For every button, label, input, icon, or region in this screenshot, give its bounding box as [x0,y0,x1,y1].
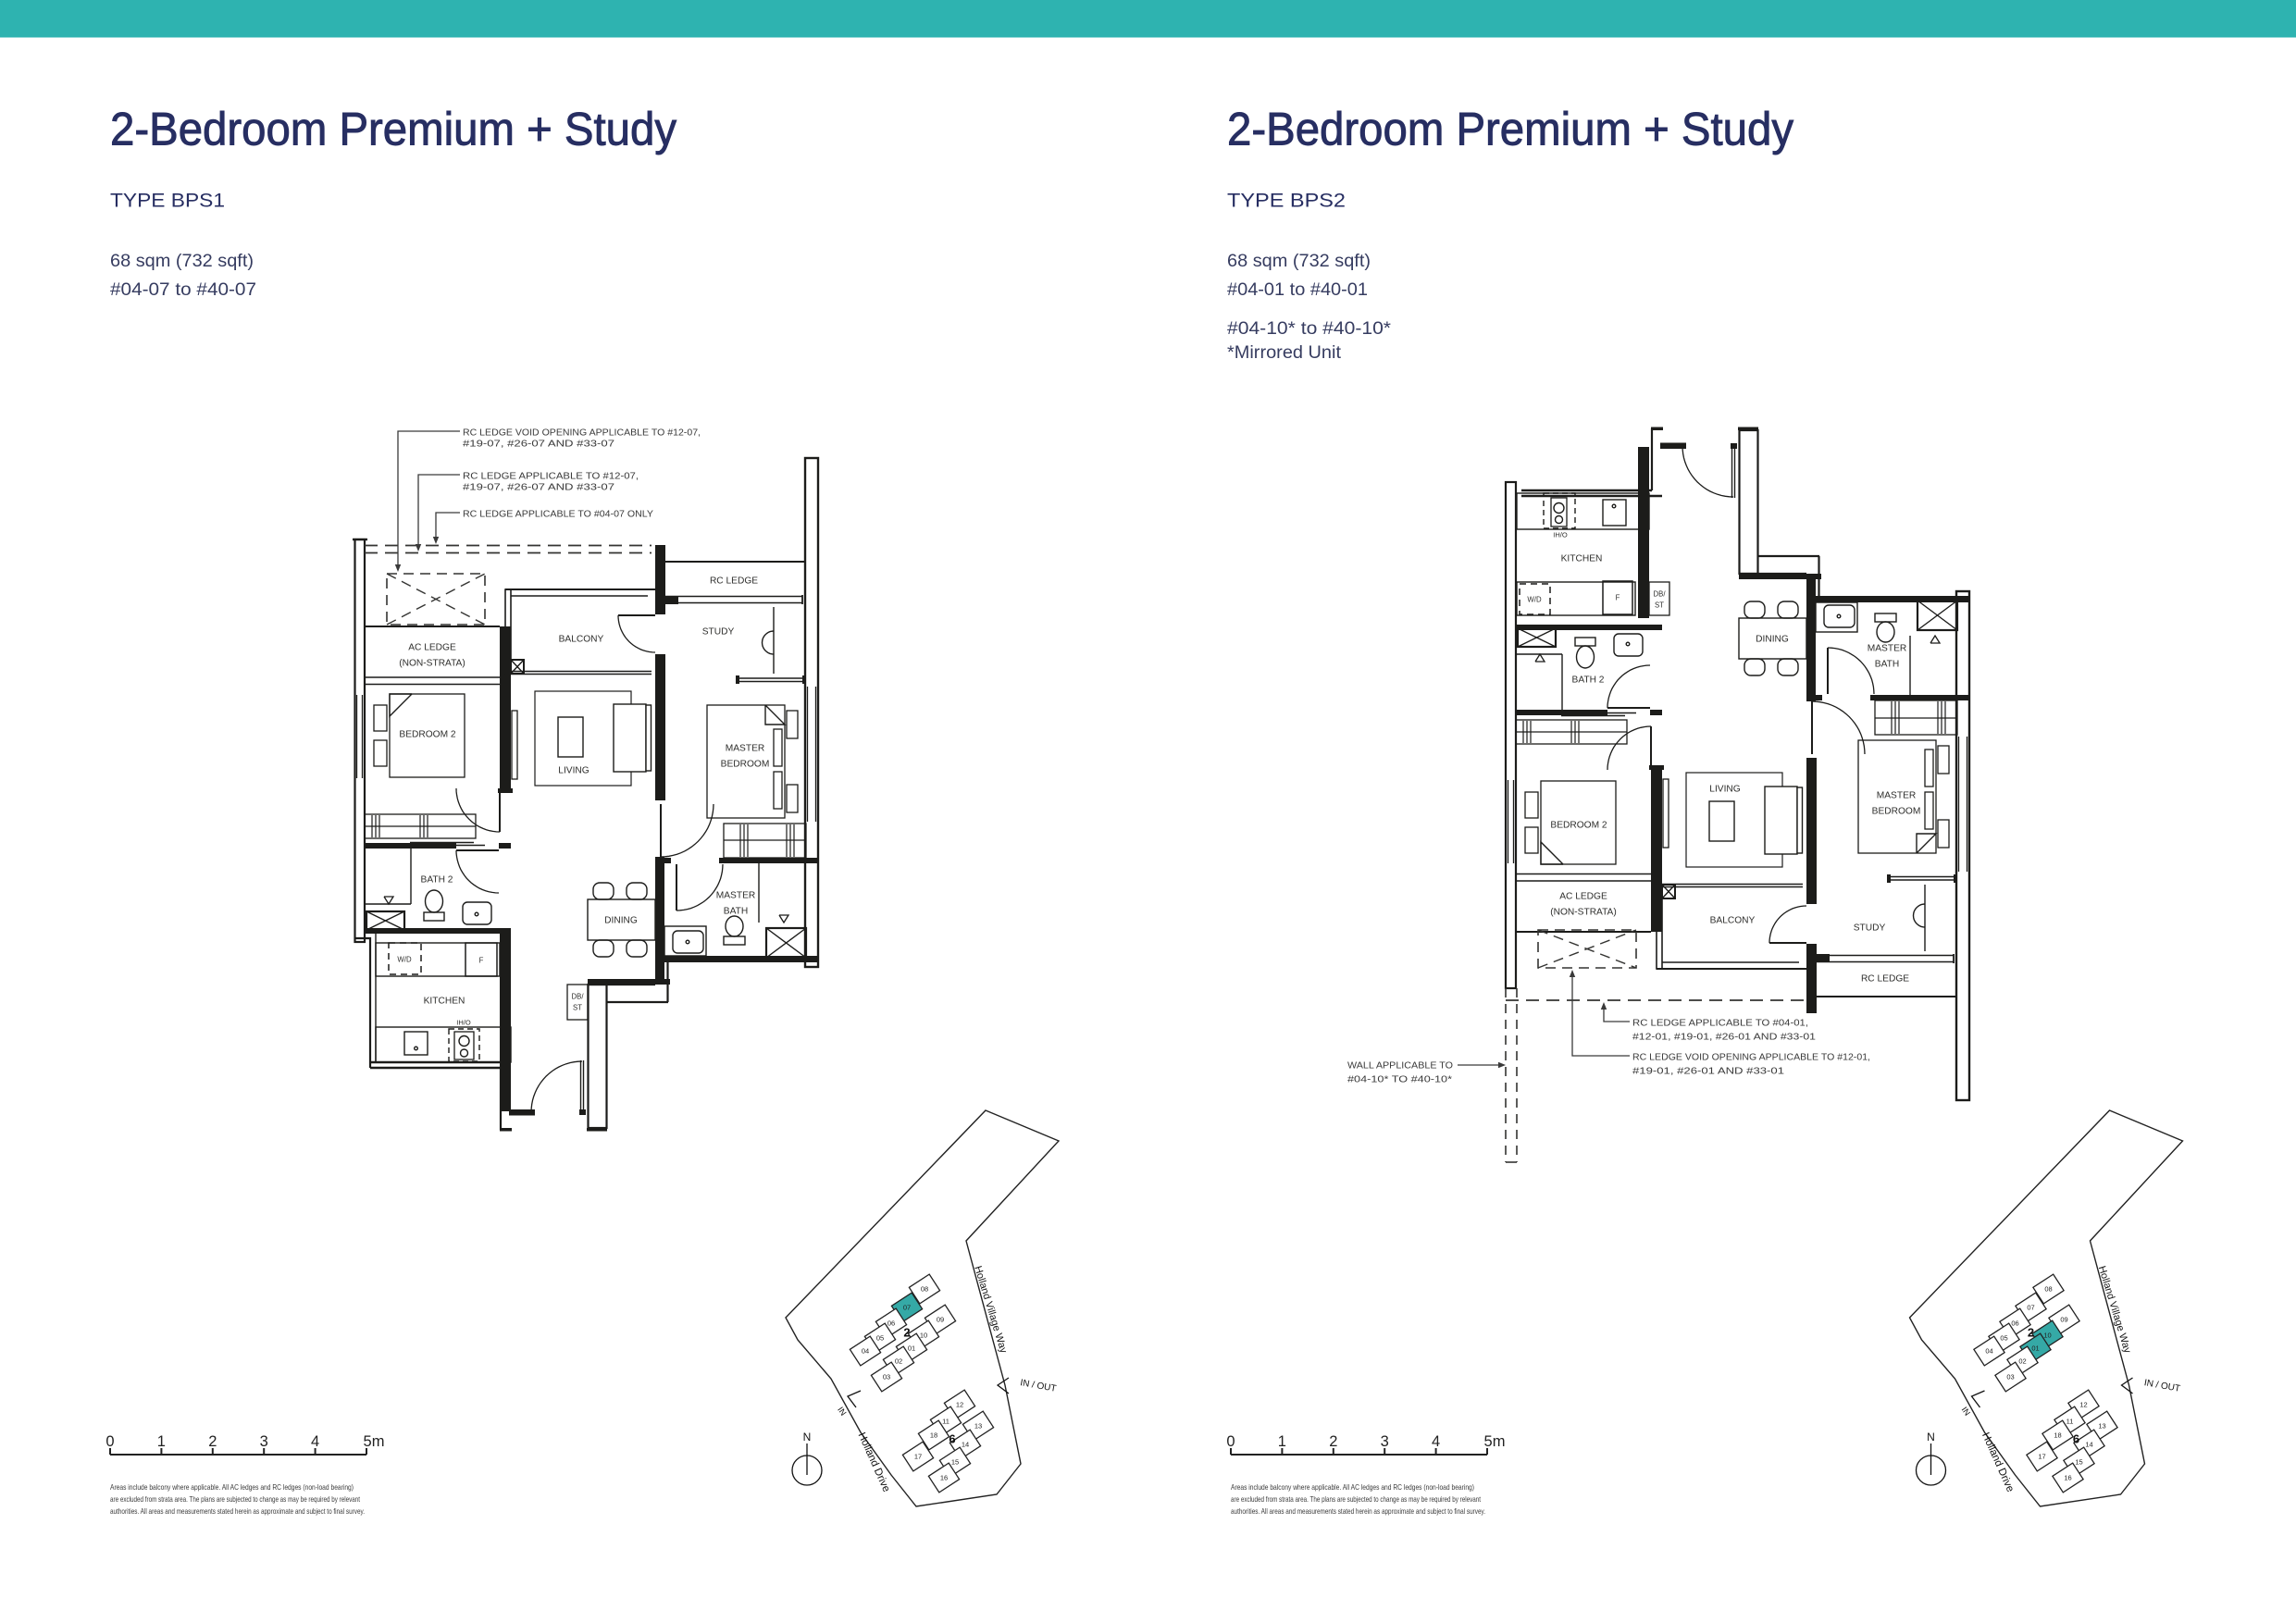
svg-text:68 sqm (732 sqft): 68 sqm (732 sqft) [110,251,254,271]
svg-text:STUDY: STUDY [702,627,735,638]
svg-text:BATH: BATH [724,907,748,917]
svg-text:BEDROOM: BEDROOM [1872,807,1921,817]
svg-text:are excluded from strata area.: are excluded from strata area. The plans… [110,1495,361,1504]
svg-text:KITCHEN: KITCHEN [1561,554,1603,564]
svg-text:02: 02 [895,1357,902,1366]
svg-text:2: 2 [2028,1326,2034,1340]
svg-text:#04-10* TO #40-10*: #04-10* TO #40-10* [1347,1075,1452,1085]
svg-text:#19-07, #26-07 AND #33-07: #19-07, #26-07 AND #33-07 [463,440,615,450]
svg-text:MASTER: MASTER [1877,791,1916,801]
svg-text:WALL APPLICABLE TO: WALL APPLICABLE TO [1347,1061,1453,1072]
svg-text:01: 01 [908,1344,915,1353]
svg-text:RC LEDGE APPLICABLE TO #04-07: RC LEDGE APPLICABLE TO #04-07 ONLY [463,510,653,520]
svg-text:F: F [479,957,484,965]
svg-text:Areas include balcony where ap: Areas include balcony where applicable. … [110,1483,354,1492]
svg-text:01: 01 [2031,1344,2039,1353]
svg-text:07: 07 [2027,1304,2034,1312]
svg-text:5m: 5m [364,1433,385,1450]
svg-text:BATH: BATH [1875,660,1899,670]
svg-text:LIVING: LIVING [1709,785,1740,795]
svg-text:#04-01 to #40-01: #04-01 to #40-01 [1227,279,1368,300]
svg-text:4: 4 [1432,1433,1440,1450]
svg-text:02: 02 [2018,1357,2026,1366]
svg-text:MASTER: MASTER [716,891,755,901]
svg-text:07: 07 [903,1304,911,1312]
svg-text:17: 17 [2038,1453,2045,1461]
svg-text:0: 0 [105,1433,114,1450]
svg-text:(NON-STRATA): (NON-STRATA) [399,659,465,669]
svg-text:Areas include balcony where ap: Areas include balcony where applicable. … [1231,1483,1474,1492]
svg-text:14: 14 [2085,1441,2092,1449]
svg-text:2-Bedroom Premium + Study: 2-Bedroom Premium + Study [110,104,676,155]
svg-text:AC LEDGE: AC LEDGE [408,643,456,653]
svg-text:RC LEDGE VOID OPENING APPLICAB: RC LEDGE VOID OPENING APPLICABLE TO #12-… [1632,1053,1870,1063]
svg-text:BEDROOM 2: BEDROOM 2 [399,730,455,740]
svg-text:1: 1 [1278,1433,1286,1450]
svg-text:3: 3 [1381,1433,1389,1450]
svg-text:W/D: W/D [397,956,412,964]
svg-text:ST: ST [573,1004,582,1012]
svg-text:06: 06 [2011,1319,2018,1328]
svg-text:68 sqm (732 sqft): 68 sqm (732 sqft) [1227,251,1371,271]
svg-text:16: 16 [940,1474,948,1482]
svg-text:W/D: W/D [1527,596,1542,604]
svg-text:IH/O: IH/O [1553,531,1568,539]
svg-text:13: 13 [2098,1422,2105,1431]
svg-text:BEDROOM: BEDROOM [721,760,770,770]
svg-text:04: 04 [862,1347,869,1356]
svg-text:N: N [803,1431,812,1443]
svg-text:RC LEDGE VOID OPENING APPLICAB: RC LEDGE VOID OPENING APPLICABLE TO #12-… [463,428,701,439]
svg-text:IH/O: IH/O [456,1019,471,1027]
svg-text:authorities. All areas and mea: authorities. All areas and measurements … [1231,1507,1485,1516]
svg-text:MASTER: MASTER [726,744,764,754]
svg-text:18: 18 [2054,1431,2061,1440]
svg-text:13: 13 [974,1422,982,1431]
svg-text:ST: ST [1655,601,1664,610]
svg-text:2-Bedroom Premium + Study: 2-Bedroom Premium + Study [1227,104,1793,155]
svg-text:6: 6 [2073,1432,2079,1446]
svg-text:DB/: DB/ [1654,590,1667,599]
svg-text:STUDY: STUDY [1854,923,1886,934]
svg-text:2: 2 [208,1433,217,1450]
svg-text:DINING: DINING [1756,635,1789,645]
svg-text:3: 3 [260,1433,268,1450]
svg-text:03: 03 [883,1373,890,1381]
svg-text:15: 15 [951,1458,959,1467]
svg-text:DB/: DB/ [572,993,585,1001]
svg-text:04: 04 [1985,1347,1992,1356]
svg-text:RC LEDGE: RC LEDGE [1861,974,1909,985]
svg-text:10: 10 [920,1332,927,1340]
svg-text:12: 12 [2079,1401,2087,1409]
svg-text:BEDROOM 2: BEDROOM 2 [1550,821,1607,831]
svg-text:11: 11 [942,1418,949,1426]
svg-text:06: 06 [887,1319,895,1328]
svg-text:09: 09 [2060,1316,2067,1324]
svg-text:6: 6 [949,1432,955,1446]
svg-text:14: 14 [962,1441,969,1449]
svg-text:0: 0 [1226,1433,1235,1450]
svg-text:#04-07 to #40-07: #04-07 to #40-07 [110,279,256,300]
svg-text:12: 12 [956,1401,963,1409]
svg-text:TYPE BPS1: TYPE BPS1 [110,190,225,211]
svg-text:are excluded from strata area.: are excluded from strata area. The plans… [1231,1495,1482,1504]
svg-text:BATH 2: BATH 2 [1572,675,1605,686]
svg-text:KITCHEN: KITCHEN [424,997,465,1007]
svg-text:18: 18 [930,1431,937,1440]
svg-text:#19-07, #26-07 AND #33-07: #19-07, #26-07 AND #33-07 [463,483,615,493]
svg-text:(NON-STRATA): (NON-STRATA) [1550,908,1617,918]
svg-text:#04-10* to #40-10*: #04-10* to #40-10* [1227,318,1391,339]
svg-text:2: 2 [903,1326,910,1340]
svg-text:09: 09 [937,1316,944,1324]
svg-text:15: 15 [2075,1458,2082,1467]
svg-text:08: 08 [921,1285,928,1294]
svg-text:05: 05 [2000,1334,2007,1343]
svg-text:BALCONY: BALCONY [1710,916,1756,926]
svg-text:RC LEDGE: RC LEDGE [710,576,758,587]
svg-text:AC LEDGE: AC LEDGE [1559,892,1607,902]
svg-text:11: 11 [2066,1418,2074,1426]
svg-text:1: 1 [157,1433,166,1450]
svg-text:17: 17 [914,1453,922,1461]
svg-text:authorities. All areas and mea: authorities. All areas and measurements … [110,1507,365,1516]
svg-text:4: 4 [311,1433,319,1450]
svg-text:BATH 2: BATH 2 [421,875,453,886]
svg-text:#19-01, #26-01 AND #33-01: #19-01, #26-01 AND #33-01 [1632,1067,1785,1077]
svg-text:F: F [1616,594,1620,602]
svg-text:N: N [1927,1431,1935,1443]
svg-text:03: 03 [2006,1373,2014,1381]
svg-text:MASTER: MASTER [1868,644,1906,654]
svg-text:08: 08 [2044,1285,2052,1294]
svg-text:RC LEDGE APPLICABLE TO #04-01,: RC LEDGE APPLICABLE TO #04-01, [1632,1019,1808,1029]
svg-text:LIVING: LIVING [558,766,589,776]
svg-text:10: 10 [2043,1332,2051,1340]
svg-text:BALCONY: BALCONY [559,635,604,645]
svg-text:#12-01, #19-01, #26-01 AND #33: #12-01, #19-01, #26-01 AND #33-01 [1632,1033,1817,1043]
svg-text:2: 2 [1329,1433,1337,1450]
svg-text:DINING: DINING [604,916,638,926]
svg-text:5m: 5m [1484,1433,1506,1450]
svg-text:*Mirrored Unit: *Mirrored Unit [1227,342,1342,363]
svg-text:16: 16 [2064,1474,2071,1482]
svg-text:RC LEDGE APPLICABLE TO #12-07,: RC LEDGE APPLICABLE TO #12-07, [463,472,639,482]
svg-text:TYPE BPS2: TYPE BPS2 [1227,190,1346,211]
svg-text:05: 05 [876,1334,884,1343]
